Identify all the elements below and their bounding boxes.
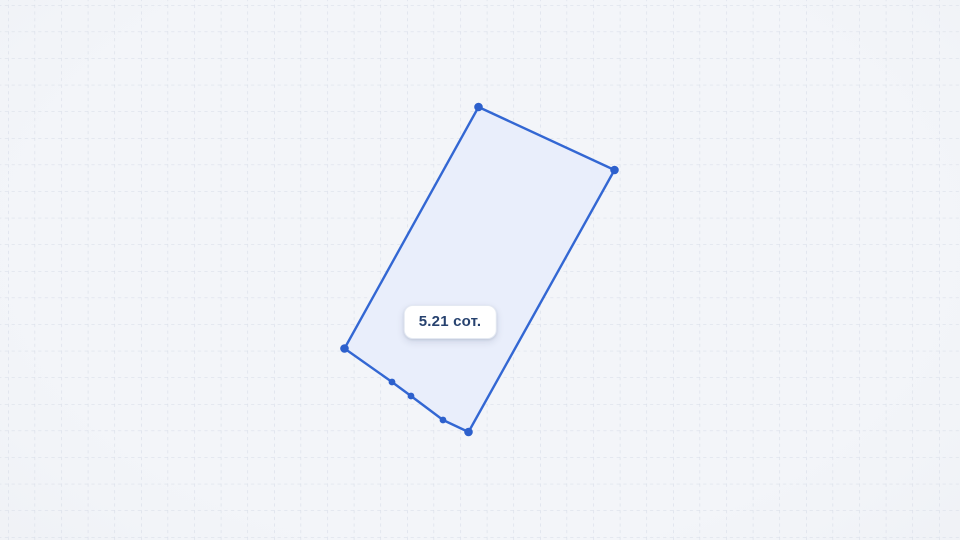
corner-vertex-handle[interactable]	[474, 103, 483, 112]
plot-canvas-svg[interactable]	[0, 0, 960, 540]
corner-vertex-handle[interactable]	[340, 344, 349, 353]
edge-vertex-handle[interactable]	[440, 417, 447, 424]
corner-vertex-handle[interactable]	[464, 428, 473, 437]
map-canvas[interactable]: 5.21 сот.	[0, 0, 960, 540]
corner-vertex-handle[interactable]	[610, 166, 619, 175]
edge-vertex-handle[interactable]	[408, 393, 415, 400]
area-label: 5.21 сот.	[404, 305, 497, 339]
area-label-text: 5.21 сот.	[419, 313, 482, 330]
edge-vertex-handle[interactable]	[389, 379, 396, 386]
